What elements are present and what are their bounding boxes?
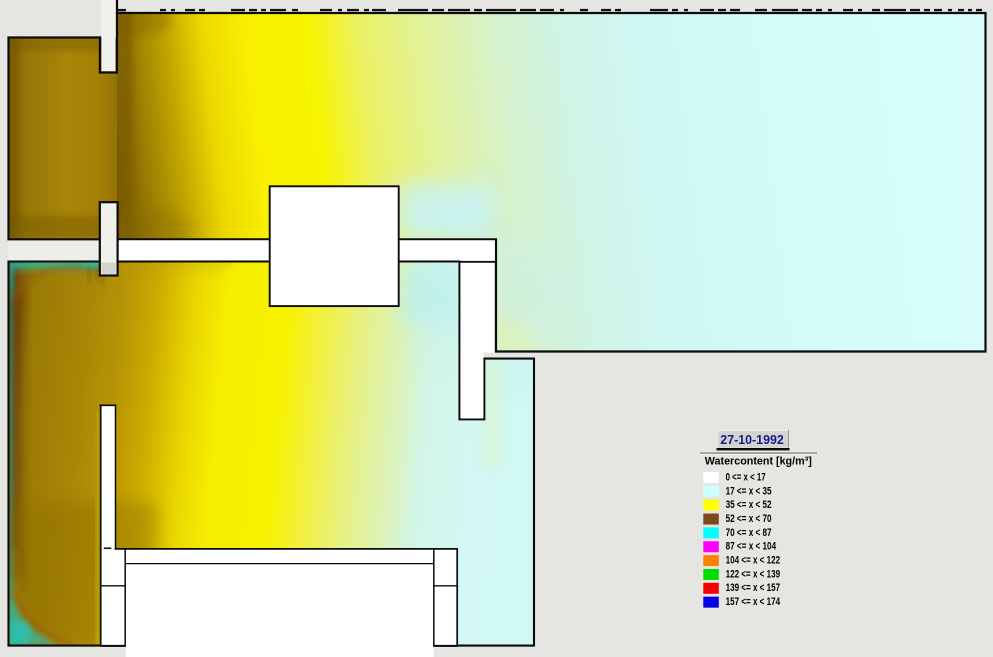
svg-text:157 <= x < 174: 157 <= x < 174	[726, 596, 781, 608]
svg-text:0 <= x < 17: 0 <= x < 17	[726, 471, 766, 483]
svg-text:Watercontent [kg/m³]: Watercontent [kg/m³]	[705, 455, 812, 467]
svg-text:52 <= x < 70: 52 <= x < 70	[726, 513, 772, 525]
svg-text:17 <= x < 35: 17 <= x < 35	[726, 485, 772, 497]
svg-text:104 <= x < 122: 104 <= x < 122	[726, 555, 781, 567]
svg-text:70 <= x < 87: 70 <= x < 87	[726, 527, 772, 539]
svg-text:87 <= x < 104: 87 <= x < 104	[726, 541, 777, 553]
svg-text:35 <= x < 52: 35 <= x < 52	[726, 499, 772, 511]
svg-text:139 <= x < 157: 139 <= x < 157	[726, 582, 781, 594]
svg-text:122 <= x < 139: 122 <= x < 139	[726, 568, 781, 580]
svg-text:27-10-1992: 27-10-1992	[720, 432, 784, 447]
